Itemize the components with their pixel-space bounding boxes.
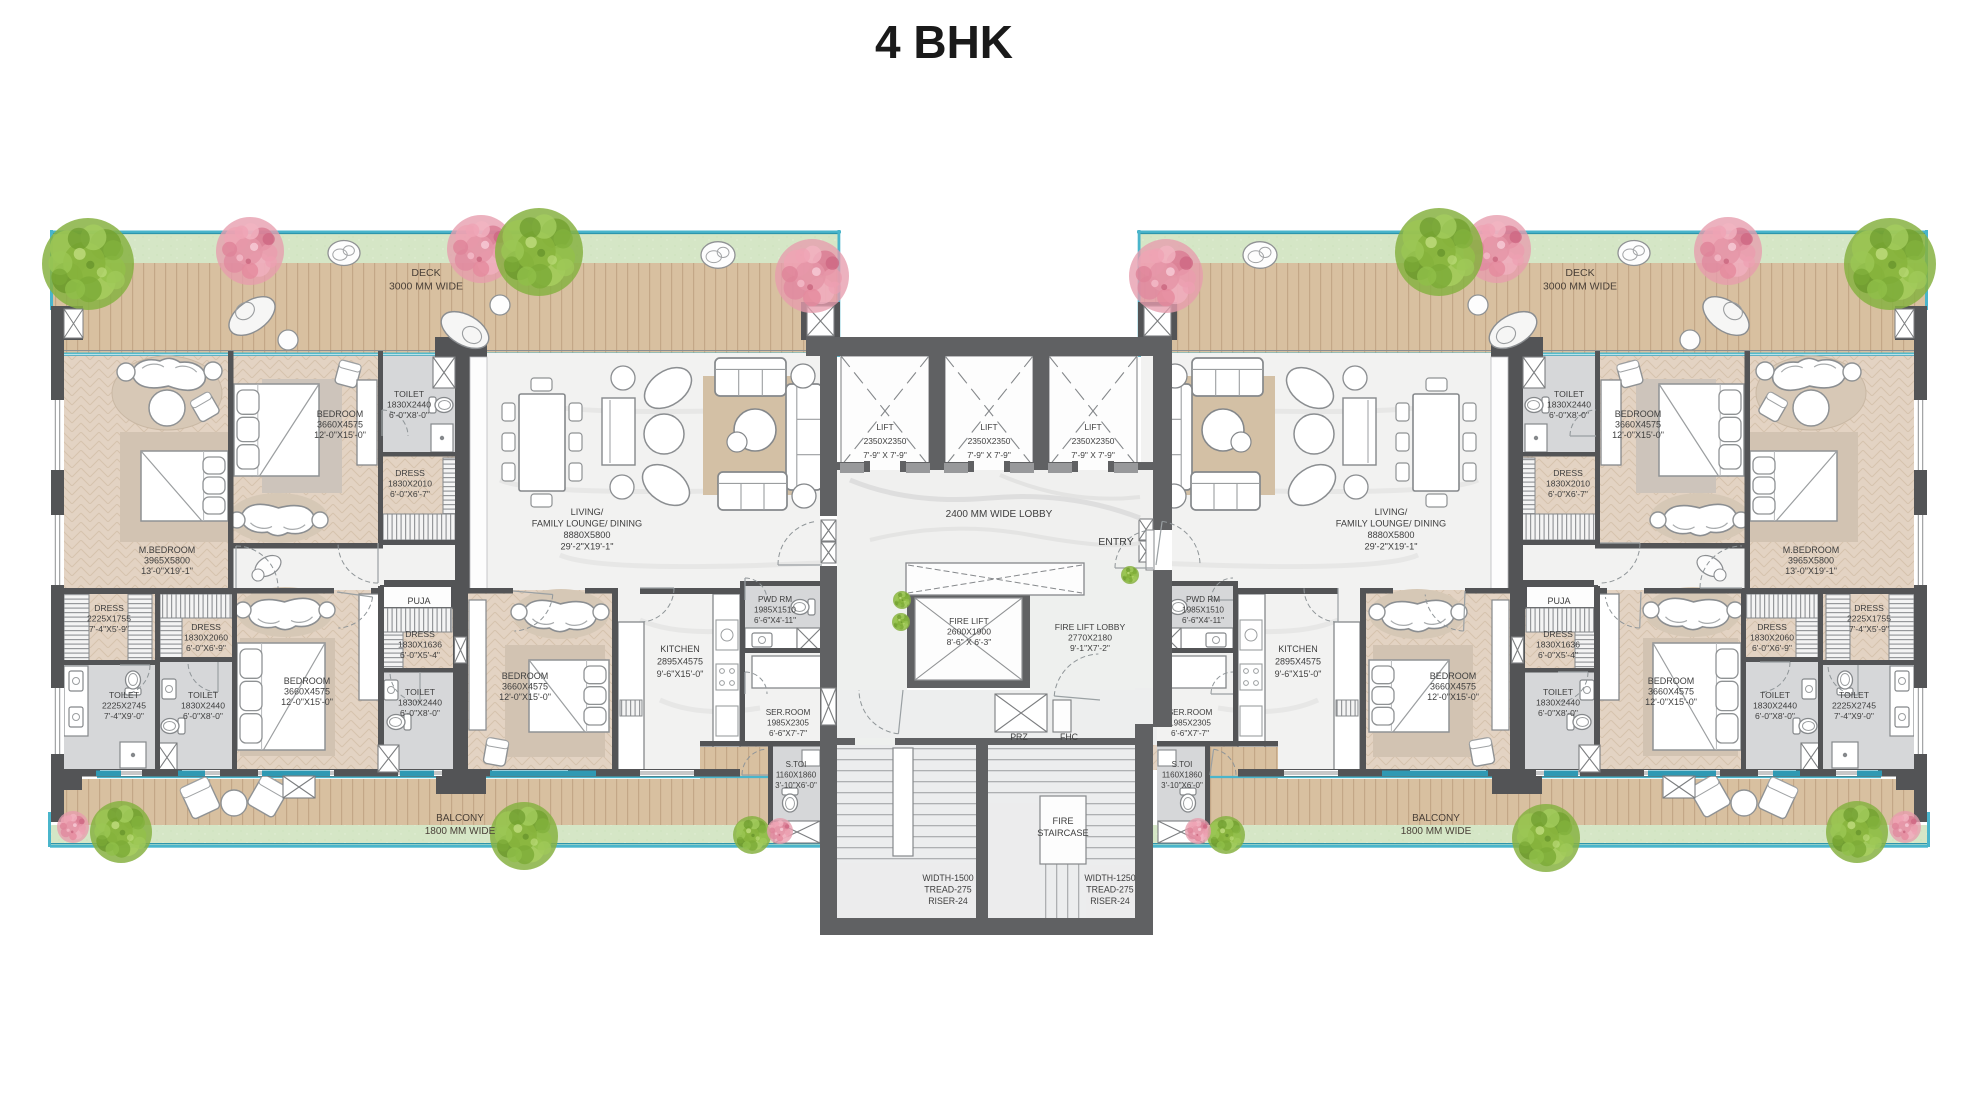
svg-text:3965X5800: 3965X5800: [144, 556, 190, 566]
svg-text:6'-0"X8'-0": 6'-0"X8'-0": [1538, 708, 1578, 718]
svg-text:1830X2440: 1830X2440: [398, 698, 442, 708]
svg-text:FIRE: FIRE: [1053, 816, 1074, 826]
svg-text:BEDROOM: BEDROOM: [284, 676, 331, 686]
svg-text:PUJA: PUJA: [407, 596, 430, 606]
svg-text:FIRE LIFT: FIRE LIFT: [949, 616, 989, 626]
svg-text:8880X5800: 8880X5800: [1367, 530, 1414, 540]
svg-text:BEDROOM: BEDROOM: [502, 671, 549, 681]
svg-text:2350X2350: 2350X2350: [864, 436, 907, 446]
svg-text:29'-2"X19'-1": 29'-2"X19'-1": [1365, 542, 1418, 552]
svg-text:1830X2060: 1830X2060: [184, 633, 228, 643]
svg-text:6'-0"X8'-0": 6'-0"X8'-0": [1549, 410, 1589, 420]
svg-text:BALCONY: BALCONY: [1412, 813, 1460, 824]
svg-text:3660X4575: 3660X4575: [1430, 682, 1476, 692]
svg-text:TOILET: TOILET: [188, 690, 219, 700]
svg-text:1830X2060: 1830X2060: [1750, 633, 1794, 643]
svg-text:1800 MM WIDE: 1800 MM WIDE: [1401, 826, 1472, 837]
svg-text:2225X1755: 2225X1755: [87, 614, 131, 624]
svg-text:DRESS: DRESS: [1854, 603, 1884, 613]
svg-text:6'-0"X5'-4": 6'-0"X5'-4": [400, 650, 440, 660]
svg-text:3'-10"X6'-0": 3'-10"X6'-0": [1161, 781, 1203, 790]
svg-text:7'-4"X5'-9": 7'-4"X5'-9": [89, 624, 129, 634]
svg-text:PRZ: PRZ: [1010, 732, 1028, 742]
svg-text:6'-6"X7'-7": 6'-6"X7'-7": [1171, 729, 1209, 738]
svg-text:LIFT: LIFT: [980, 422, 997, 432]
svg-text:1830X2440: 1830X2440: [1536, 698, 1580, 708]
svg-text:DECK: DECK: [411, 267, 440, 279]
svg-text:6'-0"X6'-7": 6'-0"X6'-7": [1548, 489, 1588, 499]
svg-text:2895X4575: 2895X4575: [1275, 657, 1321, 667]
svg-text:3660X4575: 3660X4575: [317, 420, 363, 430]
svg-text:6'-6"X4'-11": 6'-6"X4'-11": [754, 616, 796, 625]
svg-text:BEDROOM: BEDROOM: [1430, 671, 1477, 681]
svg-text:1160X1860: 1160X1860: [1162, 771, 1203, 780]
svg-text:2225X2745: 2225X2745: [1832, 701, 1876, 711]
svg-text:S.TOI: S.TOI: [786, 760, 807, 769]
svg-text:6'-0"X8'-0": 6'-0"X8'-0": [183, 711, 223, 721]
svg-text:8880X5800: 8880X5800: [563, 530, 610, 540]
svg-text:7'-9" X 7'-9": 7'-9" X 7'-9": [863, 450, 907, 460]
svg-text:TOILET: TOILET: [1839, 690, 1870, 700]
svg-text:DRESS: DRESS: [1757, 622, 1787, 632]
svg-text:FAMILY LOUNGE/ DINING: FAMILY LOUNGE/ DINING: [532, 519, 642, 529]
svg-text:6'-0"X8'-0": 6'-0"X8'-0": [389, 410, 429, 420]
svg-text:TOILET: TOILET: [1554, 389, 1585, 399]
svg-text:13'-0"X19'-1": 13'-0"X19'-1": [141, 566, 193, 576]
svg-text:12'-0"X15'-0": 12'-0"X15'-0": [1645, 697, 1697, 707]
svg-text:TOILET: TOILET: [394, 389, 425, 399]
svg-text:6'-0"X8'-0": 6'-0"X8'-0": [400, 708, 440, 718]
svg-text:2400 MM WIDE LOBBY: 2400 MM WIDE LOBBY: [946, 509, 1053, 520]
svg-text:PUJA: PUJA: [1547, 596, 1570, 606]
svg-text:LIFT: LIFT: [1084, 422, 1101, 432]
svg-text:LIVING/: LIVING/: [1375, 507, 1408, 517]
svg-text:3965X5800: 3965X5800: [1788, 556, 1834, 566]
svg-text:13'-0"X19'-1": 13'-0"X19'-1": [1785, 566, 1837, 576]
svg-text:12'-0"X15'-0": 12'-0"X15'-0": [499, 692, 551, 702]
svg-text:PWD RM: PWD RM: [758, 595, 792, 604]
svg-text:7'-4"X5'-9": 7'-4"X5'-9": [1849, 624, 1889, 634]
svg-text:BEDROOM: BEDROOM: [317, 409, 364, 419]
svg-text:1800 MM WIDE: 1800 MM WIDE: [425, 826, 496, 837]
svg-text:1985X1510: 1985X1510: [754, 606, 796, 615]
svg-text:FHC: FHC: [1060, 732, 1079, 742]
svg-text:1830X2440: 1830X2440: [387, 400, 431, 410]
svg-text:DRESS: DRESS: [1553, 468, 1583, 478]
svg-text:6'-6"X4'-11": 6'-6"X4'-11": [1182, 616, 1224, 625]
svg-text:1160X1860: 1160X1860: [776, 771, 817, 780]
svg-text:DRESS: DRESS: [1543, 629, 1573, 639]
svg-text:3660X4575: 3660X4575: [1648, 687, 1694, 697]
svg-text:TOILET: TOILET: [109, 690, 140, 700]
svg-text:7'-9" X 7'-9": 7'-9" X 7'-9": [967, 450, 1011, 460]
svg-text:29'-2"X19'-1": 29'-2"X19'-1": [561, 542, 614, 552]
svg-text:6'-0"X8'-0": 6'-0"X8'-0": [1755, 711, 1795, 721]
svg-text:PWD RM: PWD RM: [1186, 595, 1220, 604]
svg-text:M.BEDROOM: M.BEDROOM: [139, 545, 196, 555]
svg-text:1830X2010: 1830X2010: [388, 479, 432, 489]
svg-text:6'-0"X6'-9": 6'-0"X6'-9": [1752, 643, 1792, 653]
svg-text:LIVING/: LIVING/: [571, 507, 604, 517]
svg-text:2350X2350: 2350X2350: [968, 436, 1011, 446]
svg-text:2225X1755: 2225X1755: [1847, 614, 1891, 624]
svg-text:3660X4575: 3660X4575: [502, 682, 548, 692]
svg-text:2225X2745: 2225X2745: [102, 701, 146, 711]
svg-text:TOILET: TOILET: [1760, 690, 1791, 700]
svg-text:7'-9" X 7'-9": 7'-9" X 7'-9": [1071, 450, 1115, 460]
svg-text:DECK: DECK: [1565, 267, 1594, 279]
svg-text:BALCONY: BALCONY: [436, 813, 484, 824]
svg-text:4 BHK: 4 BHK: [875, 16, 1013, 68]
svg-text:12'-0"X15'-0": 12'-0"X15'-0": [1427, 692, 1479, 702]
svg-text:6'-0"X6'-9": 6'-0"X6'-9": [186, 643, 226, 653]
svg-text:8'-6" X 6'-3": 8'-6" X 6'-3": [947, 637, 992, 647]
svg-text:3'-10"X6'-0": 3'-10"X6'-0": [775, 781, 817, 790]
svg-text:2770X2180: 2770X2180: [1068, 633, 1112, 643]
svg-text:DRESS: DRESS: [94, 603, 124, 613]
svg-text:2350X2350: 2350X2350: [1072, 436, 1115, 446]
svg-text:ENTRY: ENTRY: [1098, 536, 1133, 548]
svg-text:TOILET: TOILET: [1543, 687, 1574, 697]
svg-text:1985X2305: 1985X2305: [1169, 719, 1211, 728]
svg-text:9'-6"X15'-0": 9'-6"X15'-0": [1275, 669, 1322, 679]
svg-text:2600X1900: 2600X1900: [947, 627, 991, 637]
svg-text:BEDROOM: BEDROOM: [1648, 676, 1695, 686]
svg-text:KITCHEN: KITCHEN: [1278, 644, 1318, 654]
svg-text:DRESS: DRESS: [191, 622, 221, 632]
svg-text:1985X1510: 1985X1510: [1182, 606, 1224, 615]
svg-text:S.TOI: S.TOI: [1172, 760, 1193, 769]
svg-text:3660X4575: 3660X4575: [1615, 420, 1661, 430]
svg-text:1830X2440: 1830X2440: [1547, 400, 1591, 410]
svg-text:LIFT: LIFT: [876, 422, 893, 432]
svg-text:6'-0"X6'-7": 6'-0"X6'-7": [390, 489, 430, 499]
svg-text:DRESS: DRESS: [405, 629, 435, 639]
svg-text:1830X2440: 1830X2440: [181, 701, 225, 711]
svg-text:7'-4"X9'-0": 7'-4"X9'-0": [104, 711, 144, 721]
svg-text:1985X2305: 1985X2305: [767, 719, 809, 728]
svg-text:FAMILY LOUNGE/ DINING: FAMILY LOUNGE/ DINING: [1336, 519, 1446, 529]
svg-text:TREAD-275: TREAD-275: [924, 885, 972, 895]
svg-text:RISER-24: RISER-24: [1090, 896, 1130, 906]
svg-text:1830X2010: 1830X2010: [1546, 479, 1590, 489]
svg-text:6'-0"X5'-4": 6'-0"X5'-4": [1538, 650, 1578, 660]
svg-text:9'-6"X15'-0": 9'-6"X15'-0": [657, 669, 704, 679]
svg-text:3000 MM WIDE: 3000 MM WIDE: [389, 281, 463, 293]
svg-text:WIDTH-1250: WIDTH-1250: [1084, 873, 1135, 883]
svg-text:DRESS: DRESS: [395, 468, 425, 478]
svg-text:12'-0"X15'-0": 12'-0"X15'-0": [281, 697, 333, 707]
svg-text:TOILET: TOILET: [405, 687, 436, 697]
svg-text:M.BEDROOM: M.BEDROOM: [1783, 545, 1840, 555]
svg-text:2895X4575: 2895X4575: [657, 657, 703, 667]
svg-text:3660X4575: 3660X4575: [284, 687, 330, 697]
svg-text:1830X1636: 1830X1636: [398, 640, 442, 650]
svg-text:SER.ROOM: SER.ROOM: [766, 708, 811, 717]
svg-text:12'-0"X15'-0": 12'-0"X15'-0": [1612, 430, 1664, 440]
svg-text:TREAD-275: TREAD-275: [1086, 885, 1134, 895]
svg-text:6'-6"X7'-7": 6'-6"X7'-7": [769, 729, 807, 738]
svg-text:9'-1"X7'-2": 9'-1"X7'-2": [1070, 643, 1110, 653]
svg-text:3000 MM WIDE: 3000 MM WIDE: [1543, 281, 1617, 293]
svg-text:7'-4"X9'-0": 7'-4"X9'-0": [1834, 711, 1874, 721]
svg-text:SER.ROOM: SER.ROOM: [1168, 708, 1213, 717]
svg-text:RISER-24: RISER-24: [928, 896, 968, 906]
svg-text:STAIRCASE: STAIRCASE: [1037, 828, 1088, 838]
svg-text:BEDROOM: BEDROOM: [1615, 409, 1662, 419]
svg-text:1830X1636: 1830X1636: [1536, 640, 1580, 650]
svg-text:FIRE LIFT LOBBY: FIRE LIFT LOBBY: [1055, 622, 1126, 632]
svg-text:WIDTH-1500: WIDTH-1500: [922, 873, 973, 883]
svg-text:KITCHEN: KITCHEN: [660, 644, 700, 654]
svg-text:12'-0"X15'-0": 12'-0"X15'-0": [314, 430, 366, 440]
svg-text:1830X2440: 1830X2440: [1753, 701, 1797, 711]
